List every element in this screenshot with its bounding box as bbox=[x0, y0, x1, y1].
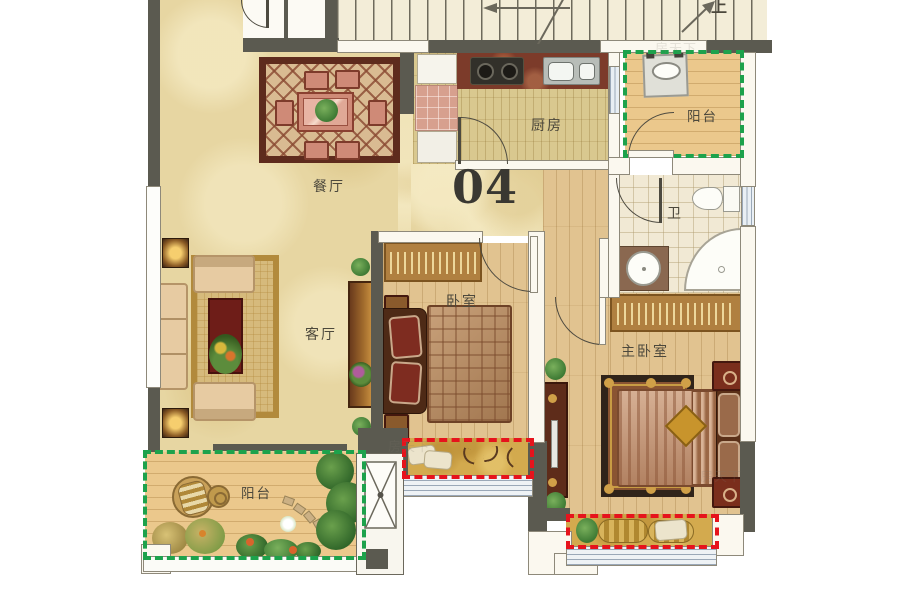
balcony-outline-bottom bbox=[143, 450, 366, 560]
dining-chair bbox=[368, 100, 387, 126]
stairs-direction-arrows bbox=[337, 0, 772, 44]
watermark: 房天下 bbox=[655, 38, 697, 57]
wall bbox=[325, 0, 337, 40]
tv-screen bbox=[551, 420, 558, 468]
window bbox=[146, 186, 161, 388]
entry-door-panel bbox=[266, 0, 269, 28]
window bbox=[741, 186, 755, 226]
rug-medallion bbox=[604, 378, 614, 388]
wall bbox=[284, 0, 288, 40]
burner-icon bbox=[501, 63, 518, 80]
table-centerpiece-plant bbox=[315, 99, 338, 122]
bathroom-door-panel bbox=[659, 178, 662, 223]
kitchen-door-panel bbox=[458, 117, 461, 164]
dining-chair bbox=[335, 141, 360, 160]
rug-medallion bbox=[681, 378, 691, 388]
wall bbox=[400, 52, 414, 114]
room-label-living: 客厅 bbox=[305, 324, 337, 344]
window bbox=[609, 66, 620, 114]
bedroom-door-panel bbox=[530, 236, 538, 293]
wall bbox=[148, 388, 160, 452]
room-label-kitchen: 厨房 bbox=[531, 115, 563, 135]
wall bbox=[148, 0, 160, 186]
cabinet-flowers bbox=[349, 362, 373, 387]
dining-chair bbox=[304, 141, 329, 160]
unit-number: 04 bbox=[452, 160, 518, 214]
elevator-icon bbox=[364, 461, 397, 529]
cabinet-knob bbox=[548, 478, 557, 487]
stove bbox=[470, 57, 524, 85]
sink-drain bbox=[642, 267, 646, 271]
watermark: 房天下 bbox=[388, 436, 430, 455]
master-door-panel bbox=[599, 297, 606, 345]
dining-chair bbox=[275, 100, 294, 126]
side-table-lamp bbox=[162, 238, 189, 268]
shower-drain bbox=[718, 266, 725, 273]
rug-medallion bbox=[604, 484, 614, 494]
wall bbox=[740, 226, 756, 442]
shaft-block bbox=[366, 549, 388, 569]
room-label-bedroom: 卧室 bbox=[446, 291, 478, 311]
kitchen-pink-tile-counter bbox=[415, 85, 458, 131]
master-bed-pillow bbox=[718, 393, 740, 437]
room-label-balcony-bottom: 阳台 bbox=[241, 482, 272, 502]
dining-chair bbox=[335, 70, 360, 89]
wardrobe bbox=[384, 242, 482, 282]
room-label-bathroom: 卫 bbox=[667, 203, 683, 223]
master-nightstand bbox=[712, 361, 743, 391]
wall bbox=[608, 157, 630, 175]
fridge bbox=[417, 131, 457, 163]
bed-pillow bbox=[389, 361, 423, 405]
toilet-bowl bbox=[692, 187, 723, 210]
burner-icon bbox=[477, 63, 494, 80]
coffee-table-flowers bbox=[209, 334, 242, 374]
armchair bbox=[193, 382, 256, 421]
wall bbox=[599, 238, 609, 298]
kitchen-cabinet bbox=[417, 54, 457, 84]
sink-basin bbox=[548, 62, 574, 81]
room-label-master: 主卧室 bbox=[621, 341, 669, 361]
wall bbox=[243, 38, 339, 52]
wardrobe-hangers bbox=[617, 303, 735, 325]
bed-pillow bbox=[388, 315, 423, 360]
floorplan-unit-04: 上 餐厅 厨房 阳台 卫 客厅 卧室 主卧室 阳台 04 房天下 房天下 房天下 bbox=[0, 0, 900, 600]
stairs-up-label: 上 bbox=[711, 0, 729, 17]
room-label-balcony-top: 阳台 bbox=[687, 105, 718, 125]
kitchen-sink bbox=[543, 57, 600, 85]
vanity-sink bbox=[626, 251, 661, 286]
potted-plant bbox=[545, 358, 566, 380]
side-table-lamp bbox=[162, 408, 189, 438]
wall bbox=[378, 231, 483, 243]
potted-plant bbox=[351, 258, 370, 276]
toilet-tank bbox=[723, 186, 740, 212]
dining-chair bbox=[304, 71, 329, 90]
armchair bbox=[193, 255, 255, 293]
cabinet-knob bbox=[548, 394, 557, 403]
balcony-door-panel bbox=[628, 150, 674, 158]
watermark: 房天下 bbox=[700, 466, 742, 485]
wall bbox=[672, 157, 745, 175]
bay-window-outline bbox=[566, 514, 719, 549]
wall bbox=[371, 231, 383, 444]
window bbox=[566, 546, 717, 566]
bed-mattress bbox=[427, 305, 512, 423]
room-label-dining: 餐厅 bbox=[313, 176, 345, 196]
rug-medallion bbox=[646, 378, 656, 388]
wardrobe-hangers bbox=[390, 252, 476, 274]
sink-basin bbox=[579, 63, 595, 80]
master-wardrobe bbox=[610, 294, 742, 332]
